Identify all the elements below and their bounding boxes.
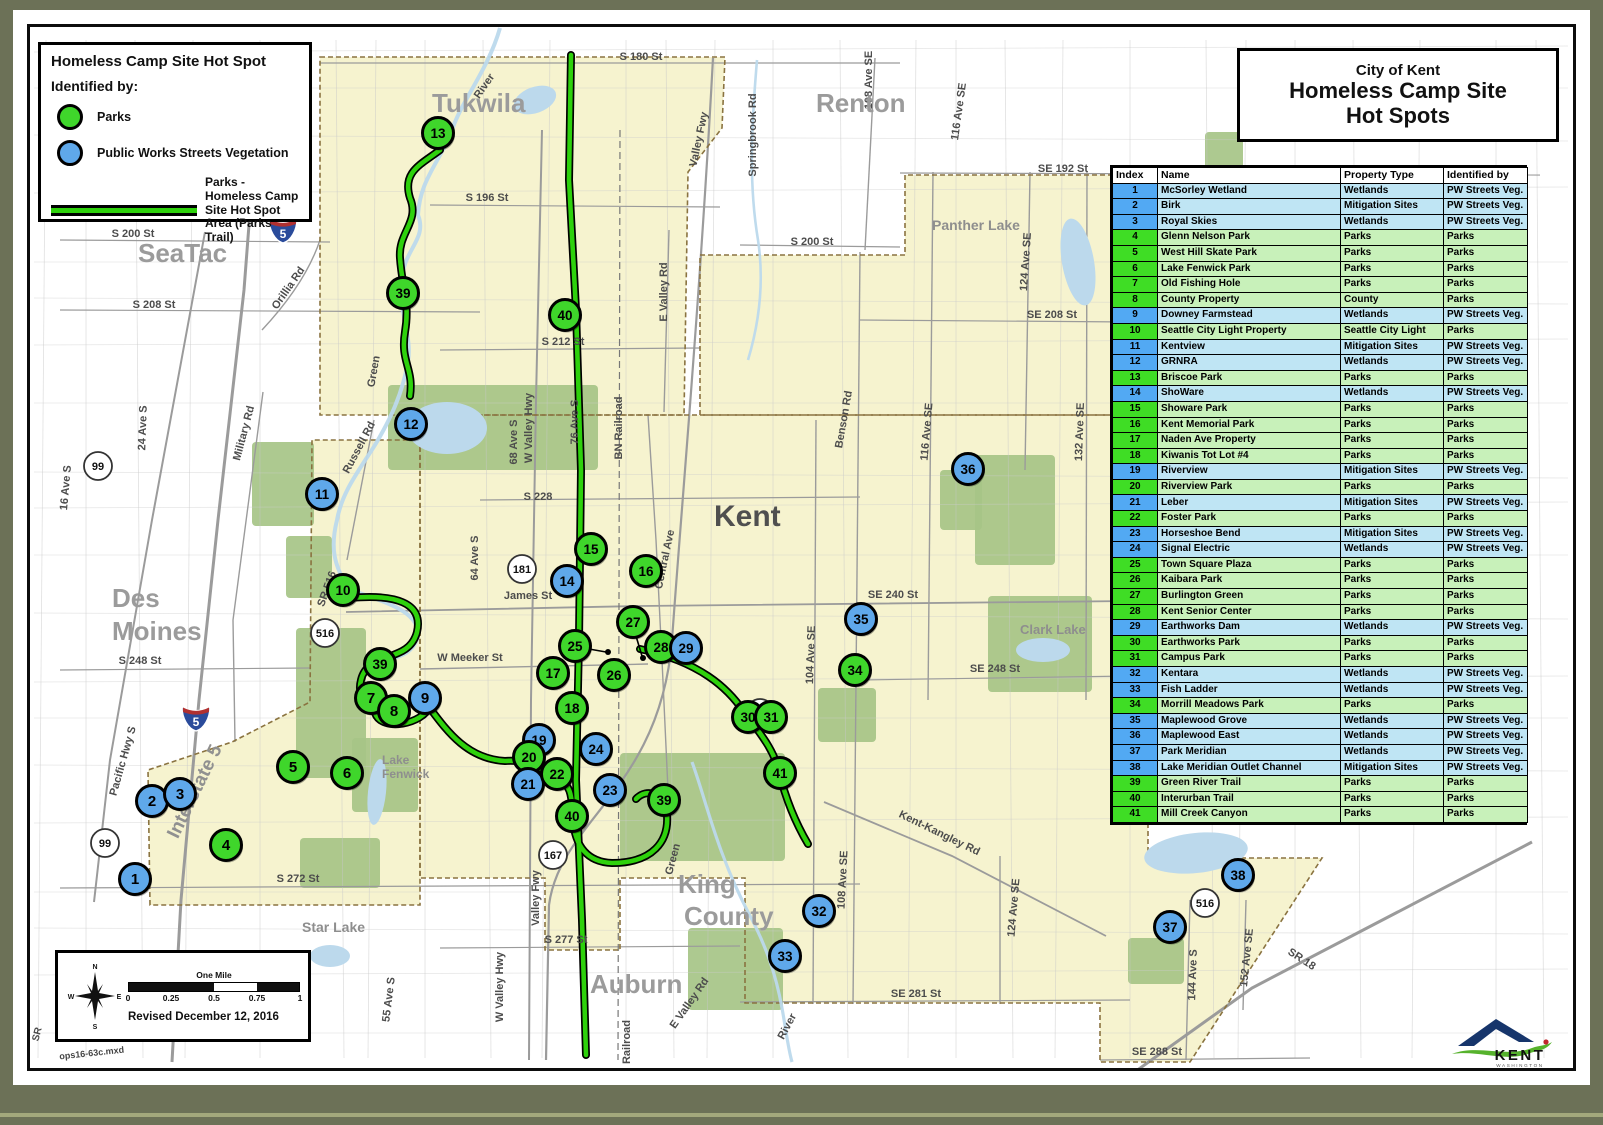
col-index: Index xyxy=(1113,168,1158,184)
logo-dot-icon xyxy=(1543,1039,1548,1044)
table-row: 27Burlington GreenParksParks xyxy=(1113,589,1528,605)
map-marker-34: 34 xyxy=(840,655,873,688)
map-marker-25: 25 xyxy=(560,631,593,664)
svg-text:36: 36 xyxy=(960,462,976,477)
svg-text:37: 37 xyxy=(1162,920,1177,935)
svg-text:39: 39 xyxy=(656,793,671,808)
svg-text:24: 24 xyxy=(588,742,604,757)
table-row: 33Fish LadderWetlandsPW Streets Veg. xyxy=(1113,682,1528,698)
map-marker-18: 18 xyxy=(557,693,590,726)
table-row: 29Earthworks DamWetlandsPW Streets Veg. xyxy=(1113,620,1528,636)
route-shield-99: 99 xyxy=(84,452,112,480)
city-label: Kent xyxy=(714,500,781,533)
svg-text:18: 18 xyxy=(564,701,580,716)
svg-text:5: 5 xyxy=(289,759,297,776)
street-label: S 180 St xyxy=(620,51,663,63)
svg-text:N: N xyxy=(92,964,97,971)
street-label: SE 248 St xyxy=(970,663,1020,675)
svg-text:181: 181 xyxy=(513,564,531,576)
street-label: Railroad xyxy=(621,1020,633,1064)
svg-text:E: E xyxy=(117,994,122,1001)
table-row: 20Riverview ParkParksParks xyxy=(1113,479,1528,495)
table-row: 21LeberMitigation SitesPW Streets Veg. xyxy=(1113,495,1528,511)
table-row: 17Naden Ave PropertyParksParks xyxy=(1113,433,1528,449)
map-marker-24: 24 xyxy=(581,734,614,767)
table-row: 22Foster ParkParksParks xyxy=(1113,511,1528,527)
table-row: 11KentviewMitigation SitesPW Streets Veg… xyxy=(1113,339,1528,355)
table-row: 7Old Fishing HoleParksParks xyxy=(1113,277,1528,293)
table-row: 6Lake Fenwick ParkParksParks xyxy=(1113,261,1528,277)
street-label: S 212 St xyxy=(542,336,585,348)
svg-text:31: 31 xyxy=(763,710,779,725)
street-label: E Valley Rd xyxy=(658,262,670,321)
scale-bar xyxy=(128,982,300,992)
table-row: 25Town Square PlazaParksParks xyxy=(1113,557,1528,573)
city-label: King xyxy=(678,869,736,899)
legend-label-parks: Parks xyxy=(97,110,131,124)
street-label: S 196 St xyxy=(466,192,509,204)
table-row: 8County PropertyCountyParks xyxy=(1113,292,1528,308)
city-label: County xyxy=(684,901,774,931)
map-marker-33: 33 xyxy=(770,941,803,974)
street-label: S 200 St xyxy=(791,236,834,248)
street-label: BN Railroad xyxy=(613,397,625,460)
table-row: 37Park MeridianWetlandsPW Streets Veg. xyxy=(1113,744,1528,760)
table-row: 3Royal SkiesWetlandsPW Streets Veg. xyxy=(1113,214,1528,230)
col-name: Name xyxy=(1158,168,1341,184)
table-row: 32KentaraWetlandsPW Streets Veg. xyxy=(1113,667,1528,683)
street-label: SE 281 St xyxy=(891,988,941,1000)
col-identified-by: Identified by xyxy=(1444,168,1528,184)
map-marker-39: 39 xyxy=(649,785,682,818)
svg-text:16: 16 xyxy=(638,564,654,579)
map-marker-39: 39 xyxy=(365,649,398,682)
svg-text:11: 11 xyxy=(315,487,330,502)
svg-text:29: 29 xyxy=(678,641,693,656)
city-label: Des xyxy=(112,583,160,613)
svg-text:8: 8 xyxy=(390,703,398,720)
svg-text:35: 35 xyxy=(853,612,869,627)
route-shield-516: 516 xyxy=(1191,889,1219,917)
table-row: 18Kiwanis Tot Lot #4ParksParks xyxy=(1113,448,1528,464)
title-line3: Hot Spots xyxy=(1346,104,1450,129)
table-row: 2BirkMitigation SitesPW Streets Veg. xyxy=(1113,199,1528,215)
map-marker-13: 13 xyxy=(423,118,456,151)
street-label: SE 192 St xyxy=(1038,163,1088,175)
svg-text:38: 38 xyxy=(1230,868,1246,883)
map-marker-11: 11 xyxy=(307,479,340,512)
street-label: S 248 St xyxy=(119,655,162,667)
svg-text:34: 34 xyxy=(847,663,863,678)
table-row: 12GRNRAWetlandsPW Streets Veg. xyxy=(1113,355,1528,371)
map-marker-8: 8 xyxy=(379,696,412,729)
svg-text:30: 30 xyxy=(740,710,755,725)
table-row: 39Green River TrailParksParks xyxy=(1113,776,1528,792)
map-marker-4: 4 xyxy=(211,830,244,863)
svg-text:167: 167 xyxy=(544,850,562,862)
table-row: 5West Hill Skate ParkParksParks xyxy=(1113,245,1528,261)
table-row: 38Lake Meridian Outlet ChannelMitigation… xyxy=(1113,760,1528,776)
legend-item-parks: Parks xyxy=(51,104,299,130)
map-marker-26: 26 xyxy=(599,660,632,693)
map-marker-36: 36 xyxy=(953,454,986,487)
svg-text:10: 10 xyxy=(335,583,350,598)
table-row: 35Maplewood GroveWetlandsPW Streets Veg. xyxy=(1113,713,1528,729)
street-label: SE 240 St xyxy=(868,589,918,601)
table-row: 40Interurban TrailParksParks xyxy=(1113,791,1528,807)
map-marker-41: 41 xyxy=(765,758,798,791)
table-row: 16Kent Memorial ParkParksParks xyxy=(1113,417,1528,433)
legend-subtitle: Identified by: xyxy=(51,78,299,94)
map-marker-39: 39 xyxy=(388,278,421,311)
revised-date: Revised December 12, 2016 xyxy=(128,1011,300,1023)
legend-label-trail: Parks - Homeless Camp Site Hot Spot Area… xyxy=(205,176,299,245)
svg-text:27: 27 xyxy=(625,615,640,630)
svg-text:W: W xyxy=(68,994,75,1001)
legend-title: Homeless Camp Site Hot Spot xyxy=(51,53,299,70)
street-label: S 228 xyxy=(524,491,553,503)
scale-title: One Mile xyxy=(128,970,300,980)
parks-marker-icon xyxy=(57,104,83,130)
legend-label-pw: Public Works Streets Vegetation xyxy=(97,146,289,160)
street-label: 64 Ave S xyxy=(469,535,481,580)
street-label: 68 Ave S xyxy=(508,419,520,464)
legend-item-pw: Public Works Streets Vegetation xyxy=(51,140,299,166)
table-row: 36Maplewood EastWetlandsPW Streets Veg. xyxy=(1113,729,1528,745)
table-row: 34Morrill Meadows ParkParksParks xyxy=(1113,698,1528,714)
street-label: S 277 St xyxy=(545,934,588,946)
city-label: Renton xyxy=(816,88,906,118)
table-row: 14ShoWareWetlandsPW Streets Veg. xyxy=(1113,386,1528,402)
svg-text:KENT: KENT xyxy=(1495,1047,1546,1064)
scale-ticks: 00.250.50.751 xyxy=(128,993,300,1005)
table-row: 10Seattle City Light PropertySeattle Cit… xyxy=(1113,323,1528,339)
map-marker-38: 38 xyxy=(1223,860,1256,893)
svg-text:1: 1 xyxy=(131,871,139,888)
svg-text:6: 6 xyxy=(343,765,351,782)
hotspot-table-box: Index Name Property Type Identified by 1… xyxy=(1110,165,1527,825)
map-marker-1: 1 xyxy=(120,864,153,897)
table-header-row: Index Name Property Type Identified by xyxy=(1113,168,1528,184)
svg-text:23: 23 xyxy=(602,783,618,798)
map-marker-29: 29 xyxy=(671,633,704,666)
city-label: Clark Lake xyxy=(1020,622,1086,637)
street-label: S 208 St xyxy=(133,299,176,311)
map-marker-15: 15 xyxy=(576,534,609,567)
street-label: 132 Ave SE xyxy=(1073,402,1087,461)
route-shield-167: 167 xyxy=(539,841,567,869)
svg-text:20: 20 xyxy=(521,750,536,765)
street-label: James St xyxy=(504,590,553,602)
street-label: 76 Ave S xyxy=(569,399,581,444)
svg-text:3: 3 xyxy=(176,786,184,803)
svg-text:13: 13 xyxy=(430,126,446,141)
route-shield-99: 99 xyxy=(91,829,119,857)
street-label: 144 Ave S xyxy=(1186,949,1200,1001)
hotspot-table: Index Name Property Type Identified by 1… xyxy=(1112,167,1528,823)
svg-text:12: 12 xyxy=(403,417,418,432)
svg-text:WASHINGTON: WASHINGTON xyxy=(1496,1063,1543,1068)
map-marker-10: 10 xyxy=(328,575,361,608)
scale-box: N E S W One Mile 00.250.50.751 Revised D… xyxy=(55,950,311,1042)
street-label: W Meeker St xyxy=(437,652,503,664)
table-row: 4Glenn Nelson ParkParksParks xyxy=(1113,230,1528,246)
logo-mountain-icon xyxy=(1458,1019,1534,1046)
svg-text:2: 2 xyxy=(148,793,156,810)
table-row: 13Briscoe ParkParksParks xyxy=(1113,370,1528,386)
street-label: Springbrook Rd xyxy=(747,93,759,176)
map-marker-37: 37 xyxy=(1155,912,1188,945)
street-label: 24 Ave S xyxy=(136,405,150,450)
street-label: Valley Fwy xyxy=(530,869,542,926)
table-row: 41Mill Creek CanyonParksParks xyxy=(1113,807,1528,823)
map-marker-5: 5 xyxy=(278,752,311,785)
svg-text:26: 26 xyxy=(606,668,622,683)
city-label: Panther Lake xyxy=(932,217,1020,233)
map-marker-40: 40 xyxy=(550,300,583,333)
svg-text:22: 22 xyxy=(549,767,564,782)
svg-text:32: 32 xyxy=(811,904,826,919)
table-row: 15Showare ParkParksParks xyxy=(1113,401,1528,417)
svg-text:5: 5 xyxy=(193,715,200,729)
legend-item-trail: Parks - Homeless Camp Site Hot Spot Area… xyxy=(51,176,299,245)
map-marker-9: 9 xyxy=(410,683,443,716)
city-label: Moines xyxy=(112,616,202,646)
legend-box: Homeless Camp Site Hot Spot Identified b… xyxy=(38,42,312,222)
table-row: 23Horseshoe BendMitigation SitesPW Stree… xyxy=(1113,526,1528,542)
title-box: City of Kent Homeless Camp Site Hot Spot… xyxy=(1237,48,1559,142)
street-label: 104 Ave SE xyxy=(804,625,818,684)
street-label: SE 288 St xyxy=(1132,1046,1182,1058)
svg-text:S: S xyxy=(93,1024,98,1031)
kent-logo: KENT WASHINGTON xyxy=(1448,1012,1564,1070)
city-label: Lake xyxy=(382,753,410,767)
map-marker-6: 6 xyxy=(332,758,365,791)
svg-text:14: 14 xyxy=(559,574,575,589)
trail-line-icon xyxy=(51,205,197,216)
map-marker-23: 23 xyxy=(595,775,628,808)
table-row: 1McSorley WetlandWetlandsPW Streets Veg. xyxy=(1113,183,1528,199)
svg-text:25: 25 xyxy=(567,639,583,654)
map-marker-31: 31 xyxy=(756,702,789,735)
table-row: 24Signal ElectricWetlandsPW Streets Veg. xyxy=(1113,542,1528,558)
city-label: Auburn xyxy=(590,969,682,999)
map-marker-35: 35 xyxy=(846,604,879,637)
route-shield-181: 181 xyxy=(508,555,536,583)
svg-text:40: 40 xyxy=(564,809,579,824)
map-marker-16: 16 xyxy=(631,556,664,589)
svg-text:39: 39 xyxy=(395,286,410,301)
street-label: S 272 St xyxy=(277,873,320,885)
svg-text:4: 4 xyxy=(222,837,231,854)
table-row: 31Campus ParkParksParks xyxy=(1113,651,1528,667)
table-row: 9Downey FarmsteadWetlandsPW Streets Veg. xyxy=(1113,308,1528,324)
svg-text:28: 28 xyxy=(653,640,669,655)
street-label: W Valley Hwy xyxy=(523,392,535,463)
map-marker-3: 3 xyxy=(165,779,198,812)
map-page: 559999181516516516167S 180 StS 196 StS 2… xyxy=(0,0,1603,1125)
table-row: 19RiverviewMitigation SitesPW Streets Ve… xyxy=(1113,464,1528,480)
svg-text:17: 17 xyxy=(545,666,560,681)
table-row: 28Kent Senior CenterParksParks xyxy=(1113,604,1528,620)
svg-text:516: 516 xyxy=(316,628,334,640)
city-label: Star Lake xyxy=(302,919,365,935)
svg-text:7: 7 xyxy=(367,690,375,707)
svg-text:41: 41 xyxy=(772,766,788,781)
svg-text:40: 40 xyxy=(557,308,572,323)
table-row: 26Kaibara ParkParksParks xyxy=(1113,573,1528,589)
svg-text:99: 99 xyxy=(92,461,104,473)
table-row: 30Earthworks ParkParksParks xyxy=(1113,635,1528,651)
map-marker-14: 14 xyxy=(552,566,585,599)
city-label: Tukwila xyxy=(432,88,526,118)
svg-text:9: 9 xyxy=(421,690,429,707)
svg-text:15: 15 xyxy=(583,542,599,557)
route-shield-516: 516 xyxy=(311,619,339,647)
svg-text:516: 516 xyxy=(1196,898,1214,910)
svg-text:39: 39 xyxy=(372,657,387,672)
col-property-type: Property Type xyxy=(1341,168,1444,184)
map-marker-40: 40 xyxy=(557,801,590,834)
svg-text:21: 21 xyxy=(520,777,536,792)
map-marker-22: 22 xyxy=(542,759,575,792)
city-label: Fenwick xyxy=(382,767,430,781)
map-marker-27: 27 xyxy=(618,607,651,640)
pw-marker-icon xyxy=(57,140,83,166)
street-label: W Valley Hwy xyxy=(494,951,506,1022)
map-marker-32: 32 xyxy=(804,896,837,929)
compass-rose-icon: N E S W xyxy=(66,958,124,1034)
title-city: City of Kent xyxy=(1356,62,1440,79)
map-marker-17: 17 xyxy=(538,658,571,691)
map-marker-12: 12 xyxy=(396,409,429,442)
street-label: SE 208 St xyxy=(1027,309,1077,321)
title-line2: Homeless Camp Site xyxy=(1289,79,1507,104)
svg-text:33: 33 xyxy=(777,949,793,964)
svg-text:99: 99 xyxy=(99,838,111,850)
bottom-accent-line xyxy=(0,1113,1603,1117)
